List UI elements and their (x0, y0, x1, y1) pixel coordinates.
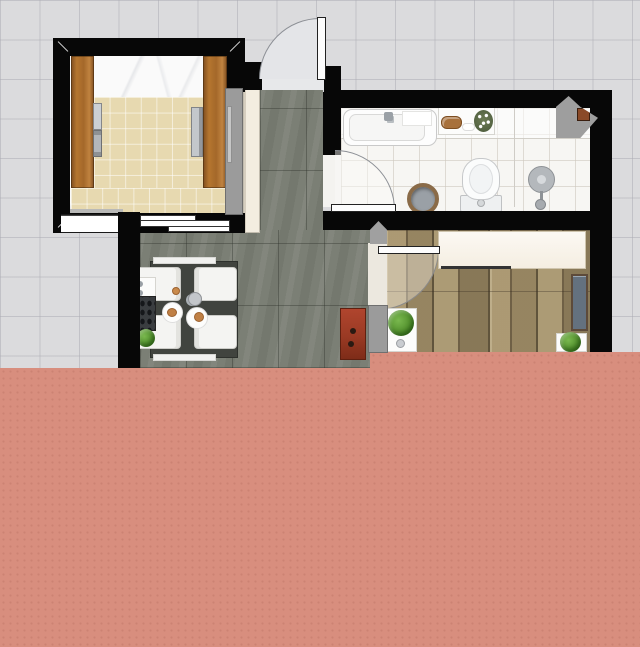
terrace-floor-step (370, 352, 640, 368)
mat-plant-left[interactable] (388, 310, 414, 336)
cabinet-knob (350, 328, 356, 334)
food-item (172, 287, 180, 295)
wooden-tray[interactable] (441, 116, 462, 129)
cabinet-knob (348, 341, 354, 347)
bathroom-door[interactable] (331, 204, 396, 212)
mat-ornament (396, 339, 405, 348)
wall-kitchen-top (53, 38, 245, 56)
terrace-floor (0, 368, 640, 647)
kitchen-floor (94, 97, 203, 190)
plate-left[interactable] (162, 302, 183, 323)
soap-dish[interactable] (462, 123, 475, 131)
blue-shelf-unit[interactable] (571, 274, 588, 331)
shower-head (528, 166, 555, 193)
entry-door[interactable] (317, 17, 326, 80)
toilet[interactable] (460, 158, 502, 213)
hallway-floor (260, 88, 323, 233)
croissant (167, 308, 177, 317)
wall-dining-left (118, 212, 140, 368)
clothes-rail (441, 266, 511, 269)
bedroom-half-wall (368, 305, 388, 353)
table-bench-bottom (153, 354, 216, 361)
wall-niche (227, 106, 232, 163)
wall-entry-right (324, 66, 341, 92)
kitchen-cabinet-left[interactable] (71, 56, 94, 188)
kitchen-stove[interactable] (93, 130, 102, 157)
shower-set[interactable] (526, 164, 558, 213)
wall-hall-bath (323, 92, 341, 155)
red-shoe-cabinet[interactable] (340, 308, 366, 360)
bathtub[interactable] (343, 109, 437, 146)
bathtub-faucet (384, 112, 393, 121)
shower-head-center (537, 175, 546, 184)
toilet-bowl (462, 158, 500, 200)
kitchen-oven[interactable] (191, 107, 203, 157)
plate-right[interactable] (186, 307, 208, 329)
window-pane (168, 226, 230, 232)
flower-pot[interactable] (474, 110, 493, 132)
kitchen-window[interactable] (61, 214, 118, 233)
table-bench-top (153, 257, 216, 264)
mat-plant-right[interactable] (560, 332, 581, 352)
wall-divider (323, 211, 612, 230)
toilet-flush-button (477, 199, 485, 207)
toilet-bowl-inner (469, 164, 493, 194)
floor-plan-canvas (0, 0, 640, 647)
kitchen-cabinet-right[interactable] (203, 56, 227, 188)
cream-tall-cabinet[interactable] (243, 88, 260, 233)
kitchen-sink[interactable] (93, 103, 102, 130)
wardrobe[interactable] (438, 231, 586, 269)
teapot[interactable] (188, 292, 202, 306)
shower-glass (514, 107, 515, 207)
wall-kitchen-left (53, 38, 70, 232)
bedroom-door[interactable] (378, 246, 440, 254)
wall-entry-left (233, 62, 262, 90)
hand-shower (535, 199, 546, 210)
croissant (194, 312, 204, 322)
bathtub-pillow (402, 111, 432, 126)
